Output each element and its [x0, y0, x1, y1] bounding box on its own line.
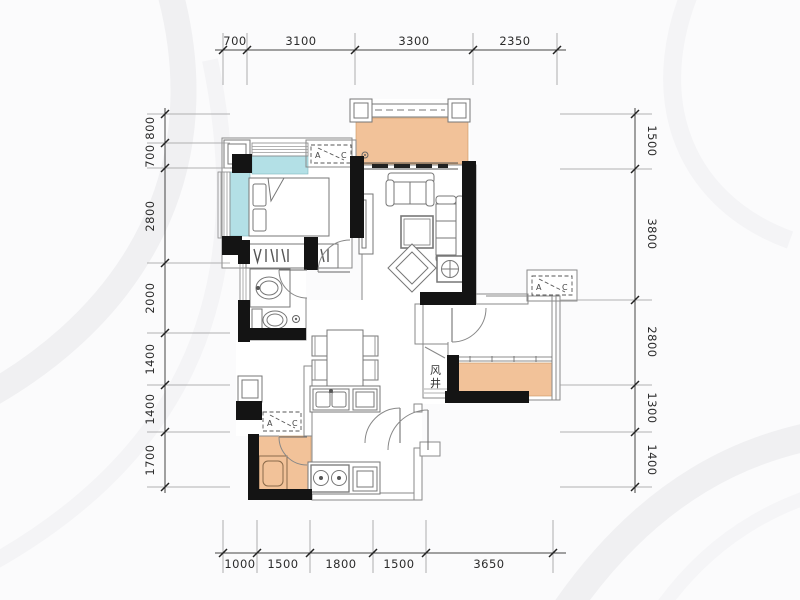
dim-left-3: 2000: [143, 282, 157, 313]
toilet: [252, 309, 287, 331]
dim-right-0: 1500: [645, 125, 659, 156]
chair: [363, 336, 378, 356]
wind-shaft: 风 井: [423, 344, 448, 398]
dimension-chain-bottom: 1000 1500 1800 1500 3650: [215, 520, 566, 573]
shaft-label-bottom: 井: [430, 376, 441, 390]
ac-label-c: C: [562, 283, 568, 292]
ac-unit-bedroom2: A C: [532, 276, 572, 295]
ac-label-a: A: [536, 283, 542, 292]
dim-left-5: 1400: [143, 393, 157, 424]
bed: [249, 178, 329, 236]
ac-label-c: C: [341, 151, 347, 160]
dim-top-2: 3300: [398, 34, 429, 48]
dim-right-1: 3800: [645, 218, 659, 249]
dim-bottom-2: 1800: [325, 557, 356, 571]
dim-bottom-4: 3650: [473, 557, 504, 571]
dim-bottom-1: 1500: [267, 557, 298, 571]
ac-unit-bedroom1: A C: [311, 145, 351, 163]
kitchen-cabinet: [353, 467, 377, 491]
side-table: [437, 256, 463, 282]
chair: [312, 360, 327, 380]
ac-label-a: A: [315, 151, 321, 160]
chair: [312, 336, 327, 356]
kitchen-furniture: [308, 462, 380, 494]
dim-right-3: 1300: [645, 392, 659, 423]
kitchen-sink-counter: [310, 386, 380, 412]
dim-top-3: 2350: [499, 34, 530, 48]
dim-top-0: 700: [223, 34, 246, 48]
dim-bottom-3: 1500: [383, 557, 414, 571]
ac-unit-utility: A C: [263, 412, 301, 431]
balcony-top: [356, 118, 468, 164]
ac-label-a: A: [267, 419, 273, 428]
utility-balcony: [257, 436, 311, 492]
hall-column: [238, 376, 262, 402]
dim-left-4: 1400: [143, 343, 157, 374]
column-right: [448, 99, 470, 122]
wardrobe: [246, 244, 338, 268]
dim-right-2: 2800: [645, 326, 659, 357]
dimension-chain-top: 700 3100 3300 2350: [215, 33, 566, 85]
dim-left-2: 2800: [143, 200, 157, 231]
dim-left-0: 800: [143, 116, 157, 139]
column-left: [350, 99, 372, 122]
dining-table: [327, 330, 363, 386]
bay-window-top: [252, 156, 308, 174]
bay-window-left: [230, 172, 250, 236]
gas-stove: [311, 465, 349, 492]
dim-right-4: 1400: [645, 444, 659, 475]
ac-label-c: C: [292, 419, 298, 428]
shaft-label-top: 风: [430, 364, 441, 377]
floor-plan-drawing: 风 井 A C A C A C: [0, 0, 800, 600]
dining-furniture: [310, 330, 380, 412]
dim-left-6: 1700: [143, 444, 157, 475]
sofa-long: [436, 196, 464, 262]
floor-plan-page: 风 井 A C A C A C: [0, 0, 800, 600]
coffee-table: [401, 216, 433, 248]
dim-top-1: 3100: [285, 34, 316, 48]
dim-bottom-0: 1000: [224, 557, 255, 571]
loveseat: [386, 173, 434, 206]
dim-left-1: 700: [143, 144, 157, 167]
chair: [363, 360, 378, 380]
